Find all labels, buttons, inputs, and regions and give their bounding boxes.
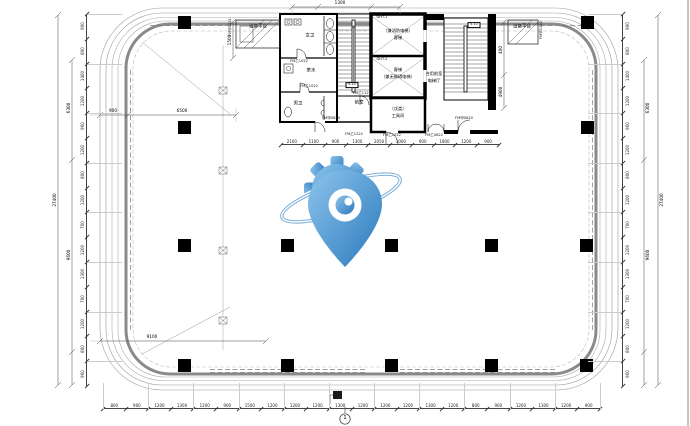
dimension-value: 700 [81, 295, 85, 303]
lift1-label-1: （兼消防电梯） [383, 29, 412, 33]
room-front-room: 前室 [355, 102, 364, 107]
door-code-0: FM甲1221 [229, 18, 233, 36]
tool-room-label-2: 工具间 [392, 114, 405, 118]
door-code-9: FM甲1222 [540, 21, 544, 39]
dimension-value: 900 [81, 23, 85, 31]
dimension-value: 1500 [245, 404, 255, 408]
dimension-value: 1200 [403, 404, 413, 408]
door-code-4: FM甲0820 [322, 117, 340, 121]
dimension-value: 900 [81, 370, 85, 378]
dimension-value: 1300 [335, 404, 345, 408]
stair-east [444, 18, 488, 100]
axis-bubble-label: 1 [343, 416, 347, 422]
dimension-value: 1200 [81, 96, 85, 106]
dimension-value: 1800 [439, 140, 449, 144]
dimension-value: 1200 [154, 404, 164, 408]
dimension-value: 800 [110, 404, 118, 408]
dimension-value: 800 [626, 171, 630, 179]
left-subtotal-upper: 6300 [67, 103, 71, 114]
lift-hall-label-2: 电梯厅 [428, 79, 441, 83]
door-code-7: FM乙0822 [425, 134, 443, 138]
dimension-value: 800 [472, 404, 480, 408]
dimension-value: 900 [626, 122, 630, 130]
dim-corner-tl-a: 900 [109, 109, 117, 113]
dimension-value: 1200 [626, 245, 630, 255]
dimension-value: 800 [81, 345, 85, 353]
dimension-value: 1200 [81, 195, 85, 205]
dimension-value: 1200 [561, 404, 571, 408]
lift1-tag: DHT-1 [377, 16, 388, 20]
room-men-toilet: 男卫 [294, 103, 303, 108]
door-code-2: FM乙1022 [300, 85, 318, 89]
dim-stair-side-a: 400 [499, 46, 503, 54]
dimension-value: 1200 [516, 404, 526, 408]
lift1-label-2: 客梯 [394, 36, 402, 40]
dimension-value: 1200 [626, 145, 630, 155]
dimension-value: 1200 [267, 404, 277, 408]
dimension-value: 1200 [81, 145, 85, 155]
level-tag-east: 5.11 [467, 22, 480, 28]
dimension-value: 800 [81, 47, 85, 55]
lift2-label-1: 客梯 [394, 68, 402, 72]
dimension-value: 1200 [461, 140, 471, 144]
lift2-label-2: （兼无障碍电梯） [381, 75, 415, 79]
left-total: 27400 [53, 193, 57, 206]
dimension-value: 1400 [81, 71, 85, 81]
right-subtotal-upper: 6300 [646, 103, 650, 114]
dimension-value: 1200 [313, 404, 323, 408]
dimension-value: 700 [81, 221, 85, 229]
dimension-value: 700 [626, 221, 630, 229]
dimension-value: 1200 [380, 404, 390, 408]
dimension-value: 1200 [200, 404, 210, 408]
dimension-value: 2100 [287, 140, 297, 144]
door-code-1: FM乙1022 [290, 60, 308, 64]
dimension-value: 800 [626, 345, 630, 353]
dimension-value: 1100 [309, 140, 319, 144]
core-bottom-dimension-chain: 2100110090013002050100090018001200900 [281, 144, 499, 145]
dim-corner-tl-b: 6500 [177, 109, 188, 113]
dimension-value: 1300 [538, 404, 548, 408]
dim-platform-left: 1500 [228, 35, 232, 46]
door-code-5: FM乙1222 [345, 133, 363, 137]
dim-corner-bl: 9100 [147, 335, 158, 339]
dimension-value: 900 [332, 140, 340, 144]
right-total: 27400 [660, 193, 664, 206]
lift-hall-label-1: 合用前室 [426, 72, 443, 76]
level-tag-west: 5.11 [345, 82, 358, 88]
dimension-value: 1300 [177, 404, 187, 408]
right-subtotal-lower: 9600 [646, 250, 650, 261]
dimension-value: 900 [81, 122, 85, 130]
dim-stair-side-b: 4900 [499, 87, 503, 98]
dimension-value: 900 [419, 140, 427, 144]
dimension-value: 1300 [352, 140, 362, 144]
dimension-value: 1300 [81, 269, 85, 279]
dimension-value: 900 [223, 404, 231, 408]
dimension-value: 1200 [448, 404, 458, 408]
right-dimension-chain: 9008001400120090012008001200700120013007… [622, 14, 623, 386]
dimension-value: 1200 [358, 404, 368, 408]
dimension-value: 900 [495, 404, 503, 408]
dimension-value: 800 [81, 171, 85, 179]
dimension-value: 900 [484, 140, 492, 144]
dimension-value: 1400 [626, 71, 630, 81]
dimension-value: 1200 [626, 195, 630, 205]
dimension-value: 1000 [396, 140, 406, 144]
dim-top-center: 1300 [335, 1, 346, 5]
door-code-8: FM甲0820 [455, 117, 473, 121]
bottom-dimension-chain: 8009001200130012009001500120012001200130… [103, 408, 600, 409]
tool-room-label-1: （戊类） [390, 107, 407, 111]
dimension-value: 2050 [374, 140, 384, 144]
dimension-value: 900 [585, 404, 593, 408]
room-tea: 茶水 [307, 70, 316, 75]
door-code-3: FM乙1121 [353, 92, 371, 96]
left-subtotal-lower: 9600 [67, 250, 71, 261]
room-equip-platform-left: 设备平台 [249, 26, 267, 31]
door-code-6: FM乙1022 [383, 134, 401, 138]
dimension-value: 1200 [626, 319, 630, 329]
dimension-value: 1200 [81, 245, 85, 255]
floor-plan-canvas: 9008001400120090012008001200700120013007… [0, 0, 690, 426]
room-women-toilet: 女卫 [306, 35, 315, 40]
dimension-value: 900 [626, 23, 630, 31]
dimension-value: 1200 [290, 404, 300, 408]
dimension-value: 900 [626, 370, 630, 378]
left-dimension-chain: 9008001400120090012008001200700120013007… [86, 14, 87, 386]
dimension-value: 800 [626, 47, 630, 55]
dimension-value: 1300 [626, 269, 630, 279]
dimension-value: 1300 [425, 404, 435, 408]
room-equip-platform-right: 设备平台 [513, 26, 531, 31]
dimension-value: 1200 [81, 319, 85, 329]
dimension-value: 900 [133, 404, 141, 408]
dimension-value: 1200 [626, 96, 630, 106]
elevator-shafts [371, 14, 427, 98]
dimension-value: 700 [626, 295, 630, 303]
lift2-tag: DHT-2 [377, 58, 388, 62]
